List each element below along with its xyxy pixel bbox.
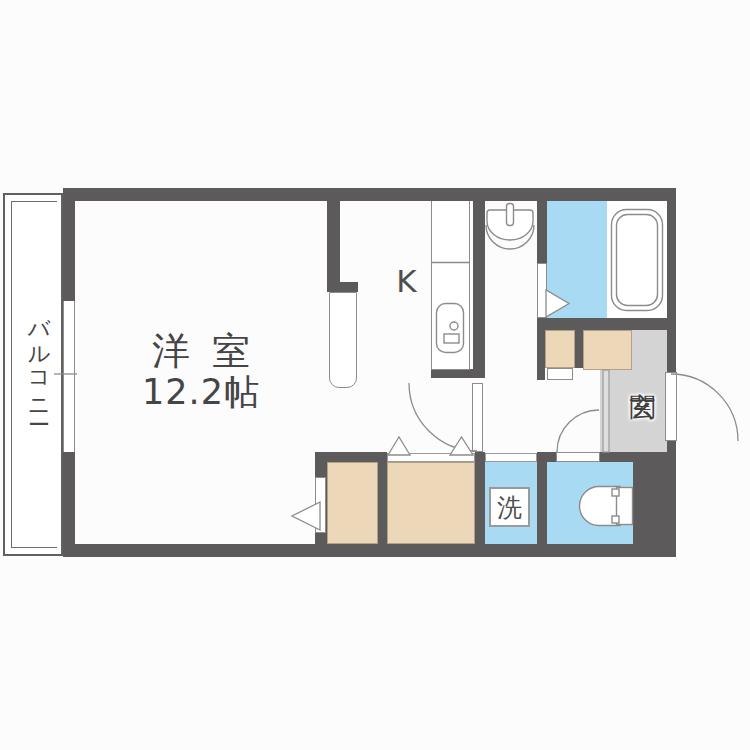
- main-room-size-label: 12.2帖: [75, 369, 327, 416]
- wall-washroom-bath-upper: [537, 201, 547, 263]
- laundry-access-strip: [485, 453, 537, 462]
- wall-under-counter: [431, 369, 485, 378]
- wall-toilet-right-block: [633, 452, 667, 544]
- closet-left-floor: [327, 462, 378, 544]
- toilet-floor: [547, 462, 633, 544]
- room-door-leaf: [472, 383, 483, 452]
- wall-kitchen-washroom: [473, 201, 485, 378]
- wall-below-bathroom: [537, 318, 676, 330]
- room-door-arc: [409, 383, 477, 451]
- wall-closet-laundry: [475, 452, 485, 544]
- washbasin-icon: [486, 204, 534, 250]
- bathroom-door-leaf: [537, 263, 547, 318]
- toilet-door-arc: [557, 410, 599, 452]
- shoe-cabinet-door: [547, 368, 573, 380]
- entrance-door-leaf: [665, 372, 677, 441]
- entrance-label: 玄関: [626, 372, 661, 378]
- closet-folding-doors-strip: [387, 453, 475, 462]
- entrance-door-arc: [671, 374, 738, 441]
- bathtub-zone: [607, 201, 667, 318]
- wall-closet-divider: [378, 452, 387, 544]
- wall-cabinet-left-stub: [537, 330, 545, 380]
- toilet-door-leaf: [556, 452, 600, 462]
- wall-cabinet-divider: [575, 330, 583, 368]
- wall-hall-bottom-mid: [537, 452, 556, 462]
- laundry-label: 洗: [497, 495, 522, 520]
- closet-right-floor: [387, 462, 475, 544]
- window-opening: [63, 301, 75, 452]
- wall-laundry-toilet: [537, 462, 547, 544]
- sliding-partition-leaf: [329, 292, 357, 388]
- laundry-box: 洗: [489, 487, 530, 527]
- closet-left-door-leaf: [315, 477, 326, 533]
- kitchen-label: K: [340, 263, 473, 299]
- wall-top: [63, 188, 676, 201]
- bathroom-floor: [547, 201, 607, 318]
- shoe-cabinet-left: [545, 330, 575, 368]
- floor-plan: 洋室 12.2帖 K バルコニー 玄関 洗: [0, 0, 750, 750]
- shoe-cabinet-right: [583, 330, 632, 370]
- wall-room-kitchen-stub: [327, 201, 340, 288]
- wall-bottom: [63, 544, 676, 557]
- balcony-label: バルコニー: [24, 304, 54, 449]
